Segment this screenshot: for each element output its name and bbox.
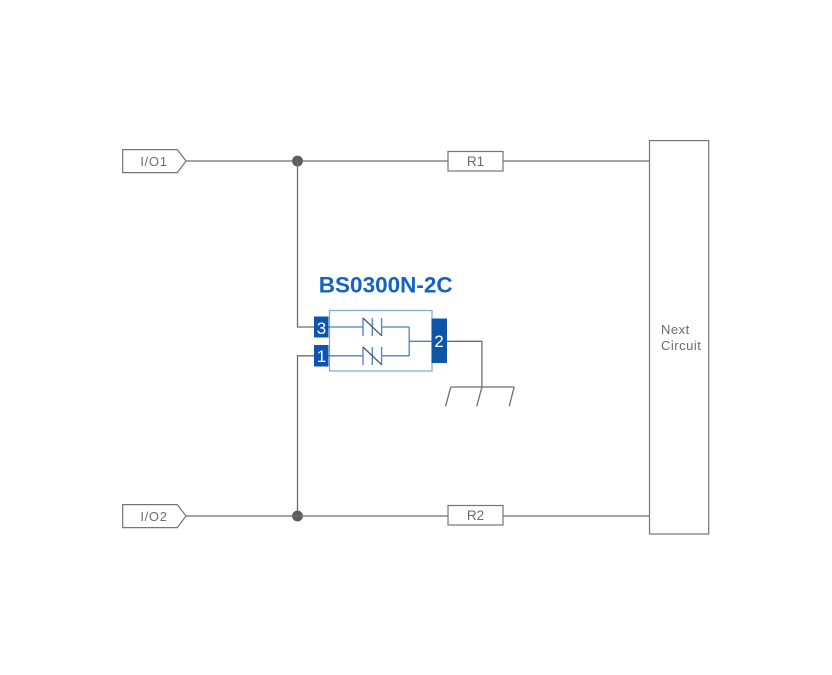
svg-text:1: 1 [317,347,326,366]
svg-text:R1: R1 [467,154,484,169]
svg-text:BS0300N-2C: BS0300N-2C [319,273,453,298]
svg-text:R2: R2 [467,508,484,523]
svg-text:Circuit: Circuit [661,338,701,353]
svg-text:Next: Next [661,322,690,337]
svg-text:2: 2 [434,332,443,351]
svg-text:3: 3 [317,319,326,338]
svg-text:I/O1: I/O1 [140,154,167,169]
svg-text:I/O2: I/O2 [140,509,167,524]
